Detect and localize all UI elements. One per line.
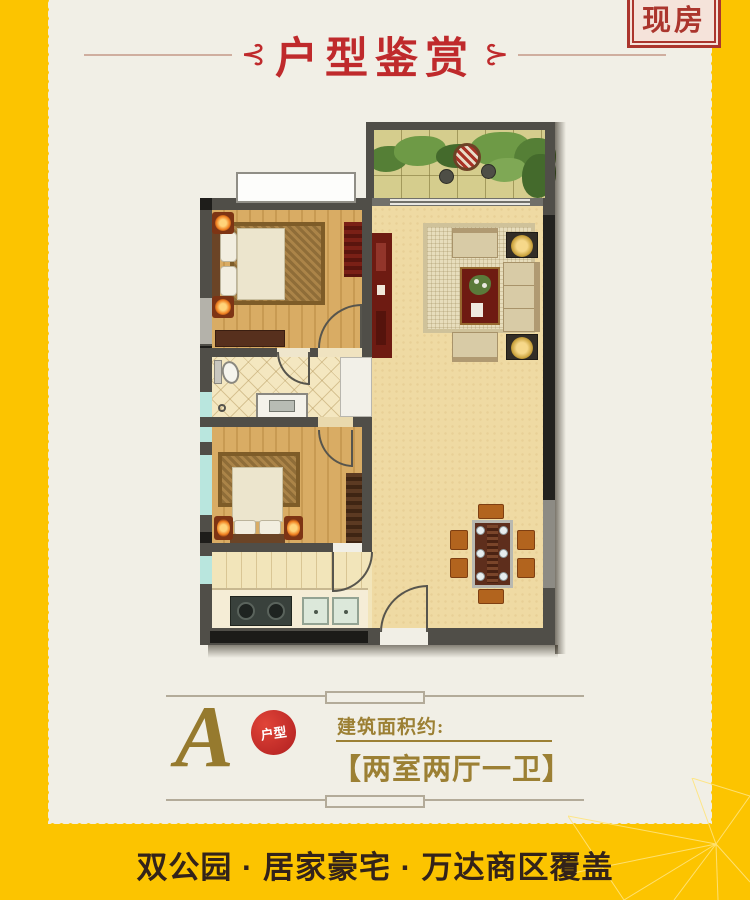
wall-bedroom2-bottom xyxy=(200,543,333,552)
bedroom1-door-leaf xyxy=(360,304,362,348)
bedroom2-door-leaf xyxy=(351,430,353,467)
perforation-left xyxy=(46,0,52,824)
armchair xyxy=(452,228,498,258)
availability-badge: 现房 xyxy=(627,0,721,48)
bedroom2-wardrobe xyxy=(346,473,362,543)
area-label: 建筑面积约: xyxy=(337,712,444,739)
wall-balcony-left xyxy=(366,122,374,198)
title-line-left xyxy=(84,54,232,56)
perforation-right xyxy=(708,0,714,824)
bedroom1-wardrobe xyxy=(344,222,362,277)
bedroom1-headboard xyxy=(212,228,220,300)
layout-text: 【两室两厅一卫】 xyxy=(332,746,572,788)
dining-chair xyxy=(450,530,468,550)
corner-lamp xyxy=(506,232,538,258)
bedroom2-pillow xyxy=(259,520,281,535)
window-kitchen xyxy=(200,556,212,584)
plan-shadow-right xyxy=(555,122,566,654)
divider-bottom xyxy=(166,799,584,808)
balcony-stool xyxy=(439,169,454,184)
bedroom1-pillow xyxy=(220,232,237,262)
divider-ornament xyxy=(325,691,425,704)
kitchen-stove xyxy=(230,596,292,626)
availability-badge-label: 现房 xyxy=(642,0,706,45)
entry-door-leaf xyxy=(426,585,428,632)
floor-plan xyxy=(200,120,556,654)
bathroom-door-leaf xyxy=(308,352,310,385)
bay-window xyxy=(236,172,356,203)
window-bedroom1 xyxy=(200,298,212,344)
shower-drain xyxy=(218,404,226,412)
wall-right xyxy=(543,198,555,215)
footer-slogan: 双公园 · 居家豪宅 · 万达商区覆盖 xyxy=(0,842,750,887)
gold-underline xyxy=(336,740,552,742)
wall-segment xyxy=(362,543,372,552)
unit-type-badge-label: 户型 xyxy=(259,721,287,743)
bedroom1-dresser xyxy=(215,330,285,347)
wall-bedroom1-bottom xyxy=(200,348,277,357)
wall-bedroom2-right xyxy=(362,417,372,552)
poster: { "badge": { "label": "现房" }, "header": … xyxy=(0,0,750,900)
dining-chair xyxy=(478,589,504,604)
bedroom2-door-opening xyxy=(318,417,353,427)
bedroom1-door-opening xyxy=(318,348,362,357)
title-ornament-left: ⊰ xyxy=(241,40,266,70)
wall-kitchen-dark xyxy=(210,631,368,643)
kitchen-door-leaf xyxy=(332,552,334,592)
window-bedroom2 xyxy=(200,455,212,515)
sofa xyxy=(503,262,540,332)
balcony-sliding-door xyxy=(372,198,545,206)
bedroom2-pillow xyxy=(234,520,256,535)
title-line-right xyxy=(518,54,666,56)
dining-table xyxy=(472,520,513,588)
coffee-table xyxy=(460,267,500,325)
wall-balcony-right xyxy=(545,122,555,205)
bedroom2-bed xyxy=(232,467,283,522)
wall-bottom-right xyxy=(428,628,555,645)
bedroom1-bed xyxy=(237,228,285,300)
armchair xyxy=(452,332,498,362)
page-title: 户型鉴赏 xyxy=(275,24,475,86)
balcony-stool xyxy=(481,164,496,179)
wall-corner xyxy=(200,198,212,210)
bedroom2-nightstand-lamp xyxy=(284,516,303,540)
title-ornament-right: ⊱ xyxy=(484,40,509,70)
window-dining xyxy=(543,500,555,588)
dining-chair xyxy=(478,504,504,519)
tv-cabinet xyxy=(372,233,392,358)
wall-segment xyxy=(362,348,372,357)
divider-ornament xyxy=(325,795,425,808)
wall-segment xyxy=(310,348,318,357)
bathroom-vanity xyxy=(256,393,308,419)
wall-bedroom1-right xyxy=(362,198,372,357)
plan-shadow-bottom xyxy=(208,645,558,658)
dining-chair xyxy=(517,530,535,550)
wall-right-dark xyxy=(543,215,555,500)
dining-chair xyxy=(450,558,468,578)
dining-chair xyxy=(517,558,535,578)
bedroom1-nightstand-lamp xyxy=(212,296,234,318)
kitchen-sink xyxy=(302,597,329,625)
bedroom2-nightstand-lamp xyxy=(214,516,233,540)
unit-letter: A xyxy=(175,694,234,782)
corner-lamp xyxy=(506,334,538,360)
wall-balcony-top xyxy=(366,122,555,130)
bedroom1-nightstand-lamp xyxy=(212,212,234,234)
balcony-table xyxy=(453,143,481,171)
bedroom1-pillow xyxy=(220,266,237,296)
kitchen-sink xyxy=(332,597,359,625)
duct-shaft xyxy=(340,357,372,417)
wall-bedroom2-top xyxy=(200,417,318,427)
bedroom2-headboard xyxy=(230,534,285,543)
